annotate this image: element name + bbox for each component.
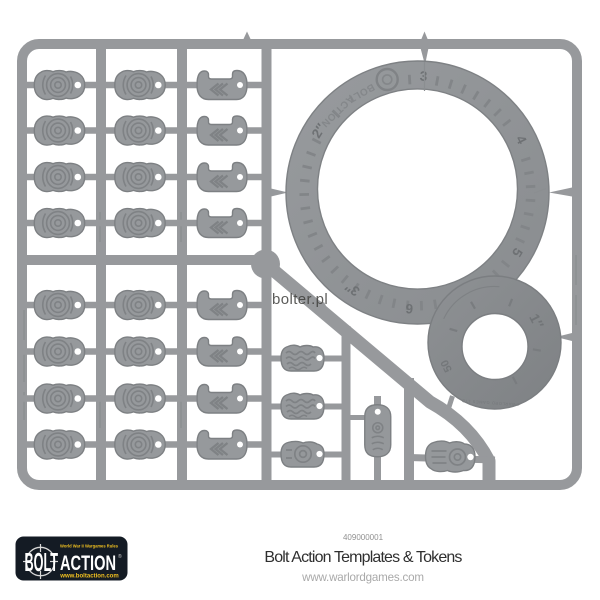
svg-text:®: ® <box>118 553 122 560</box>
svg-text:3: 3 <box>419 69 428 84</box>
svg-text:www.boltaction.com: www.boltaction.com <box>59 573 119 580</box>
svg-text:BOLT: BOLT <box>25 547 59 577</box>
svg-text:World War II Wargames Rules: World War II Wargames Rules <box>60 544 118 549</box>
